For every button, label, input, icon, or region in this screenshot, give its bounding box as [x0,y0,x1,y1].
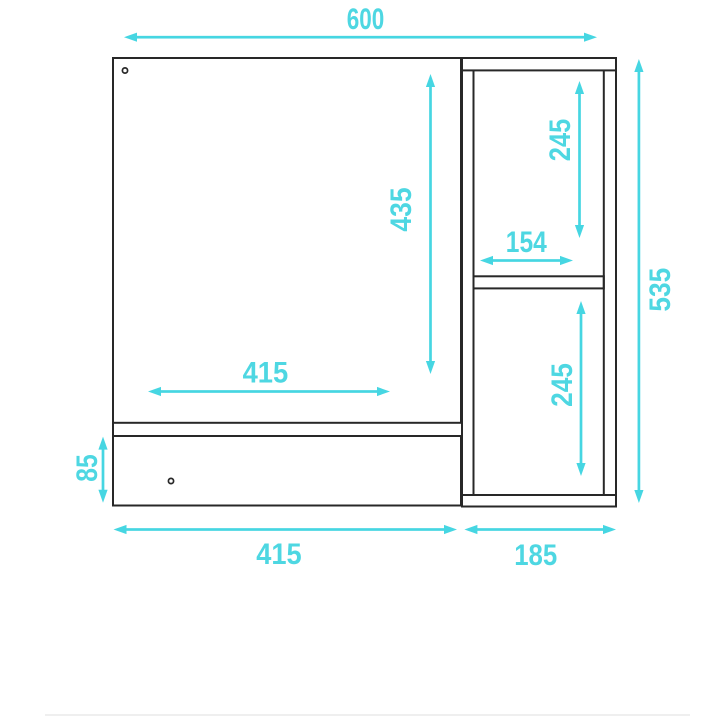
svg-text:185: 185 [514,539,557,572]
svg-text:85: 85 [71,454,104,482]
svg-text:154: 154 [506,226,547,259]
svg-text:600: 600 [347,3,385,36]
svg-text:415: 415 [256,538,301,571]
svg-text:415: 415 [243,357,289,390]
svg-text:435: 435 [385,187,418,231]
svg-text:535: 535 [644,268,677,312]
svg-text:245: 245 [546,363,579,407]
svg-text:245: 245 [544,119,577,161]
